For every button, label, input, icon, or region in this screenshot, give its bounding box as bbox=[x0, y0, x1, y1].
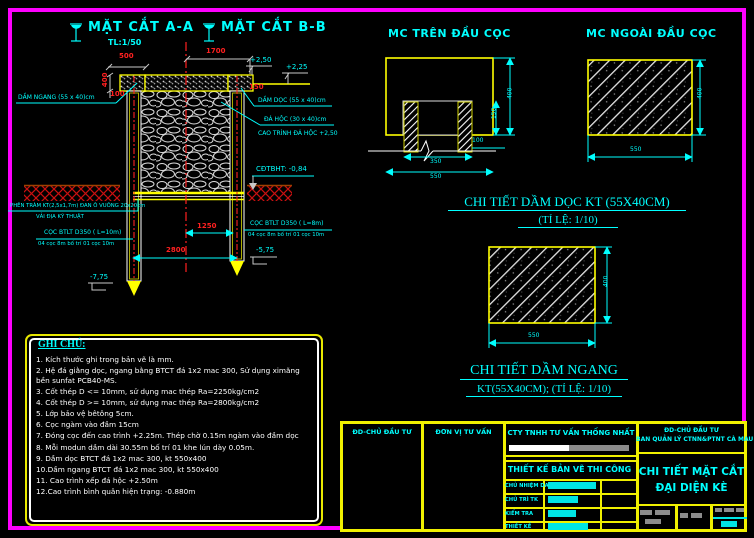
note-item: 2. Hệ đá giằng dọc, ngang bằng BTCT đá 1… bbox=[36, 366, 312, 385]
tb-col2-header: ĐƠN VỊ TƯ VẤN bbox=[424, 428, 503, 436]
tb-redaction-bar bbox=[680, 513, 688, 518]
elev-225: +2,25 bbox=[286, 64, 307, 72]
dim-1700: 1700 bbox=[206, 48, 225, 56]
tb-row-label: THIẾT KẾ bbox=[505, 524, 531, 530]
label-cdtbht: CĐTBHT: -0,84 bbox=[256, 166, 307, 174]
mc-ngoai-dim-550: 550 bbox=[630, 147, 641, 154]
tb-sheet-number-bar bbox=[721, 521, 737, 527]
section-mark-aa-icon bbox=[70, 24, 82, 41]
tb-row-label: CHỦ TRÌ TK bbox=[505, 497, 538, 503]
note-item: 8. Mỗi modun dầm dài 30.55m bố trí 01 kh… bbox=[36, 443, 312, 453]
tb-divider bbox=[503, 479, 636, 481]
label-coc-left-sub: 04 cọc 8m bố trí 01 cọc 10m bbox=[38, 242, 114, 248]
dim-150: 150 bbox=[249, 84, 264, 92]
label-dam-doc: DẦM DỌC (55 x 40)cm bbox=[258, 98, 326, 105]
tb-owner-line2: BAN QUẢN LÝ CTNN&PTNT CÀ MAU bbox=[636, 436, 747, 443]
tb-sheet-divider-line bbox=[713, 517, 747, 519]
label-coc-right: CỌC BTLT D350 ( L=8m) bbox=[250, 221, 323, 228]
label-dam-ngang: DẦM NGANG (55 x 40)cm bbox=[18, 95, 95, 102]
ct-doc-title: CHI TIẾT DẦM DỌC KT (55X40CM) bbox=[448, 195, 686, 211]
ct-ngang-scale: KT(55X40CM); (TỈ LỆ: 1/10) bbox=[466, 383, 622, 397]
mc-tren-dim-550: 550 bbox=[430, 174, 441, 181]
tb-redaction-bar bbox=[736, 508, 744, 512]
note-item: 5. Lớp bảo vệ bêtông 5cm. bbox=[36, 409, 312, 419]
tb-company: CTY TNHH TƯ VẤN THỐNG NHẤT bbox=[506, 429, 636, 437]
tb-col1-header: ĐD-CHỦ ĐẦU TƯ bbox=[343, 428, 421, 436]
tb-signature-bar bbox=[548, 510, 576, 517]
section-title-aa: MẶT CẮT A-A bbox=[88, 21, 194, 35]
tb-row-label: KIỂM TRA bbox=[505, 511, 533, 517]
notes-list: 1. Kích thước ghi trong bản vẽ là mm. 2.… bbox=[36, 355, 312, 498]
tb-redaction-bar bbox=[645, 519, 661, 524]
tb-divider bbox=[675, 504, 678, 529]
label-phen-tram: PHÊN TRÀM KT(2,5x1,7m) ĐAN Ô VUÔNG 20x20… bbox=[10, 204, 145, 210]
label-cao-trinh-da-hoc: CAO TRÌNH ĐÁ HỘC +2,50 bbox=[258, 131, 338, 138]
note-item: 1. Kích thước ghi trong bản vẽ là mm. bbox=[36, 355, 312, 365]
title-block: ĐD-CHỦ ĐẦU TƯ ĐƠN VỊ TƯ VẤN CTY TNHH TƯ … bbox=[340, 421, 747, 532]
note-item: 7. Đóng cọc đến cao trình +2.25m. Thép c… bbox=[36, 431, 312, 441]
ct-doc-scale: (TỈ LỆ: 1/10) bbox=[518, 214, 618, 228]
section-title-bb: MẶT CẮT B-B bbox=[221, 21, 327, 35]
tb-redaction-bar bbox=[691, 513, 702, 518]
tb-redaction-bar bbox=[640, 510, 652, 515]
label-vai-dia: VẢI ĐỊA KỸ THUẬT bbox=[36, 215, 84, 221]
tb-divider bbox=[600, 479, 602, 532]
tb-signature-bar bbox=[548, 496, 578, 503]
elev-775: -7,75 bbox=[90, 274, 108, 282]
elev-250: +2,50 bbox=[250, 57, 271, 65]
tb-divider bbox=[503, 460, 636, 462]
tb-signature-bar bbox=[548, 482, 596, 489]
tb-stage: THIẾT KẾ BẢN VẼ THI CÔNG bbox=[503, 465, 636, 474]
label-coc-left: CỌC BTLT D350 ( L=10m) bbox=[44, 230, 121, 237]
mc-ngoai-figure bbox=[588, 60, 706, 162]
section-scale-aa: TL:1/50 bbox=[108, 39, 141, 48]
note-item: 6. Cọc ngàm vào đầm 15cm bbox=[36, 420, 312, 430]
dim-2800: 2800 bbox=[166, 247, 185, 255]
ct-doc-figure bbox=[489, 247, 612, 348]
ct-doc-dim-550: 550 bbox=[528, 333, 539, 340]
dim-400: 400 bbox=[102, 70, 110, 90]
dim-100: 100 bbox=[110, 91, 125, 99]
ct-doc-dim-400: 400 bbox=[604, 272, 611, 290]
tb-redaction-bar bbox=[655, 510, 670, 515]
note-item: 9. Dầm dọc BTCT đá 1x2 mac 300, kt 550x4… bbox=[36, 454, 312, 464]
mc-tren-dim-100: 100 bbox=[472, 138, 483, 145]
tb-divider bbox=[503, 493, 636, 495]
mc-ngoai-title: MC NGOÀI ĐẦU CỌC bbox=[586, 28, 717, 40]
mc-ngoai-dim-400: 400 bbox=[698, 84, 705, 102]
tb-redaction-bar bbox=[724, 508, 734, 512]
note-item: 4. Cốt thép D >= 10mm, sử dụng mac thép … bbox=[36, 398, 312, 408]
tb-drawing-title-line1: CHI TIẾT MẶT CẮT bbox=[636, 466, 747, 478]
elev-575: -5,75 bbox=[256, 247, 274, 255]
tb-owner-line1: ĐD-CHỦ ĐẦU TƯ bbox=[636, 427, 747, 434]
section-mark-bb-icon bbox=[203, 24, 215, 41]
ct-ngang-title: CHI TIẾT DẦM NGANG bbox=[460, 363, 628, 380]
tb-signature-bar bbox=[548, 523, 588, 530]
tb-divider bbox=[503, 455, 636, 457]
tb-divider bbox=[421, 424, 424, 529]
tb-drawing-title-line2: ĐẠI DIỆN KÈ bbox=[636, 482, 747, 494]
mc-tren-dim-150: 150 bbox=[492, 104, 499, 122]
cad-sheet: MẶT CẮT A-A TL:1/50 MẶT CẮT B-B MC TRÊN … bbox=[0, 0, 754, 538]
note-item: 12.Cao trình bình quân hiện trạng: -0.88… bbox=[36, 487, 312, 497]
tb-divider bbox=[636, 452, 747, 454]
tb-divider bbox=[636, 504, 747, 506]
cap-beam bbox=[120, 75, 310, 91]
tb-redaction-bar bbox=[569, 445, 629, 451]
notes-title: GHI CHÚ: bbox=[38, 339, 86, 350]
mc-tren-title: MC TRÊN ĐẦU CỌC bbox=[388, 28, 511, 40]
label-da-hoc: ĐÁ HỘC (30 x 40)cm bbox=[264, 117, 326, 124]
dim-1250: 1250 bbox=[197, 223, 216, 231]
mc-tren-dim-350: 350 bbox=[430, 159, 441, 166]
dim-500: 500 bbox=[119, 53, 134, 61]
note-item: 11. Cao trình xếp đá hộc +2.50m bbox=[36, 476, 312, 486]
tb-redaction-bar bbox=[509, 445, 569, 451]
tb-divider bbox=[503, 507, 636, 509]
mc-tren-dim-400: 400 bbox=[508, 84, 515, 102]
tb-row-label: CHỦ NHIỆM DA bbox=[505, 483, 549, 489]
note-item: 3. Cốt thép D <= 10mm, sử dụng mac thép … bbox=[36, 387, 312, 397]
label-coc-right-sub: 04 cọc 8m bố trí 01 cọc 10m bbox=[248, 233, 324, 239]
base-band bbox=[133, 193, 244, 200]
note-item: 10.Dầm ngang BTCT đá 1x2 mac 300, kt 550… bbox=[36, 465, 312, 475]
tb-redaction-bar bbox=[715, 508, 722, 512]
